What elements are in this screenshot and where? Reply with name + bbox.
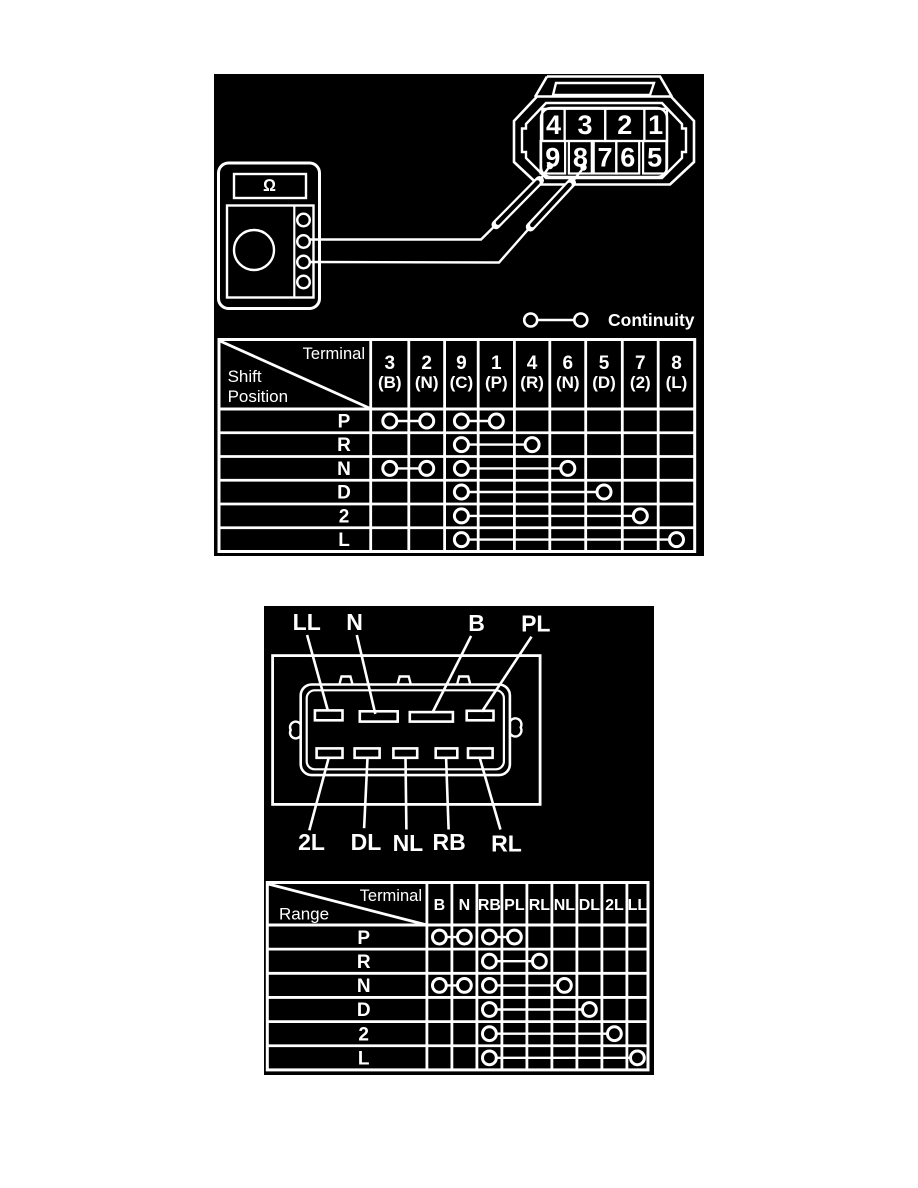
svg-text:B: B [468,610,485,636]
svg-text:N: N [346,609,363,635]
svg-text:2L: 2L [298,829,325,855]
svg-text:RL: RL [529,897,551,914]
svg-text:PL: PL [521,611,550,637]
svg-text:PL: PL [504,897,525,914]
svg-text:5: 5 [647,143,662,173]
svg-text:N: N [459,897,471,914]
svg-text:RB: RB [478,897,501,914]
svg-text:2L: 2L [605,897,624,914]
svg-text:D: D [357,1000,371,1021]
svg-text:Ω: Ω [263,176,276,195]
svg-text:1: 1 [648,110,663,140]
svg-text:LL: LL [628,897,648,914]
svg-text:(R): (R) [520,373,544,392]
svg-text:8: 8 [671,353,682,374]
svg-text:7: 7 [635,353,646,374]
svg-text:R: R [337,435,351,456]
svg-text:DL: DL [351,829,382,855]
svg-text:NL: NL [554,897,576,914]
svg-text:NL: NL [393,830,424,856]
svg-text:B: B [434,897,446,914]
svg-text:2: 2 [358,1024,369,1045]
svg-text:7: 7 [597,143,612,173]
svg-text:RL: RL [491,831,522,857]
svg-text:P: P [338,412,351,433]
svg-text:2: 2 [617,110,632,140]
svg-text:P: P [357,928,370,949]
svg-text:N: N [357,976,371,997]
svg-text:4: 4 [546,110,561,140]
svg-text:N: N [337,459,351,480]
svg-text:9: 9 [456,353,467,374]
svg-text:2: 2 [421,353,432,374]
svg-text:Continuity: Continuity [608,310,695,330]
svg-text:1: 1 [491,353,502,374]
svg-text:6: 6 [620,143,635,173]
svg-text:(C): (C) [450,373,474,392]
svg-text:Shift: Shift [228,367,262,386]
svg-text:5: 5 [599,353,610,374]
svg-text:L: L [338,530,350,551]
svg-text:(N): (N) [415,373,439,392]
svg-text:LL: LL [293,609,321,635]
svg-text:(N): (N) [556,373,580,392]
svg-text:L: L [358,1049,370,1070]
svg-text:Terminal: Terminal [303,345,365,363]
svg-text:D: D [337,483,351,504]
svg-text:(B): (B) [378,373,402,392]
svg-text:3: 3 [385,353,396,374]
svg-text:R: R [357,952,371,973]
svg-text:3: 3 [577,110,592,140]
svg-text:Position: Position [228,387,288,406]
svg-text:(L): (L) [666,373,688,392]
svg-text:6: 6 [563,353,574,374]
svg-text:(P): (P) [485,373,508,392]
svg-text:DL: DL [579,897,601,914]
svg-text:(2): (2) [630,373,651,392]
svg-text:Range: Range [279,905,329,924]
svg-text:(D): (D) [592,373,616,392]
svg-text:Terminal: Terminal [360,887,422,905]
svg-text:2: 2 [339,507,350,528]
svg-text:RB: RB [432,829,465,855]
svg-text:4: 4 [527,353,538,374]
